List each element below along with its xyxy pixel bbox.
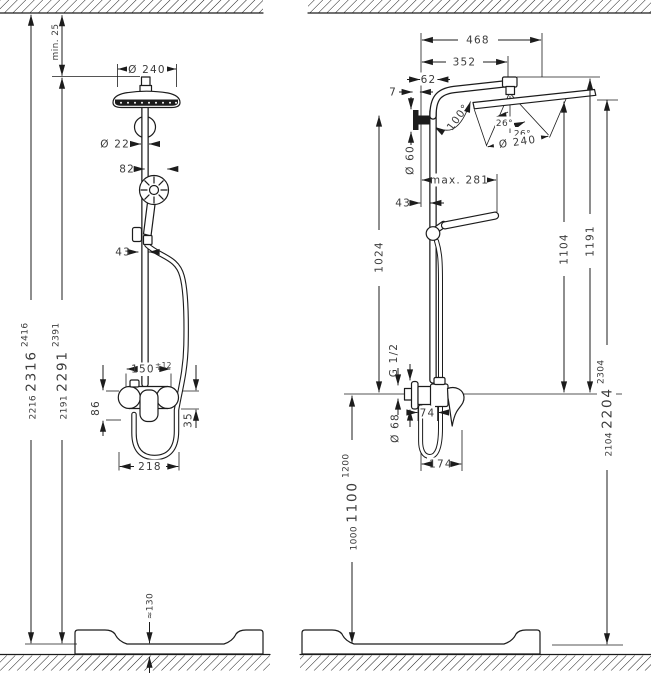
mixer-lever-front — [140, 390, 158, 422]
mixer-cartridge-cap — [434, 378, 445, 385]
side-view: 468 352 62 7 100° 26° 26° — [302, 33, 623, 654]
front-view: 2216 2316 2416 2191 2291 2391 min. 25 — [21, 15, 264, 673]
shower-tray-front — [75, 630, 263, 654]
dim-connection-height-high: 1200 — [342, 453, 352, 478]
front-dimensions: 2216 2316 2416 2191 2291 2391 min. 25 — [21, 15, 197, 673]
dim-head-dia-side: Ø 240 — [498, 134, 537, 151]
technical-drawing-page: 2216 2316 2416 2191 2291 2391 min. 25 — [0, 0, 651, 674]
dim-unit-height-mid: 2291 — [55, 350, 71, 392]
dim-connection-height-mid: 1100 — [345, 481, 361, 523]
dim-head-height-low: 2104 — [605, 432, 615, 457]
dim-bracket-height-label: 1024 — [374, 241, 386, 273]
dim-min-ceiling-label: min. 25 — [51, 24, 61, 61]
dim-connection-tolerance-label: ±12 — [155, 361, 172, 370]
wall-bracket-flange — [413, 110, 419, 130]
head-pivot-joint — [503, 77, 518, 87]
mixer-body-side — [418, 387, 431, 405]
dim-bracket-dia-label: Ø 60 — [405, 145, 417, 175]
dim-total-height-mid: 2316 — [24, 350, 40, 392]
front-shower-unit — [113, 77, 186, 458]
overhead-shower-side — [473, 90, 596, 109]
wall-bracket-arm — [419, 116, 431, 125]
dim-head-height-high: 2304 — [597, 359, 607, 384]
dim-thread-label: G 1/2 — [388, 343, 400, 377]
dim-tilt-left-label: 26° — [496, 119, 513, 129]
dim-wall-gap-label: 7 — [389, 87, 397, 99]
dim-overall-depth-label: 174 — [429, 459, 453, 471]
dim-unit-height-high: 2391 — [52, 322, 62, 347]
mixer-escutcheon-side — [412, 382, 419, 410]
dim-pipe-dia-label: Ø 22 — [100, 139, 130, 151]
slider-holder — [133, 228, 142, 242]
mixer-escutcheon-left — [118, 387, 140, 409]
dim-escutcheon-dia-label: Ø 68 — [390, 413, 402, 443]
slider-clamp — [426, 227, 440, 241]
dim-unit-height-low: 2191 — [60, 395, 70, 420]
side-dimensions: 468 352 62 7 100° 26° 26° — [342, 34, 617, 645]
dim-body-depth-label: 74 — [420, 408, 436, 420]
shower-installation-drawing: 2216 2316 2416 2191 2291 2391 min. 25 — [0, 0, 651, 674]
dim-overall-height-label: 1191 — [585, 225, 597, 257]
handshower-side — [441, 212, 499, 230]
dim-connection-width-label: 150 — [131, 364, 155, 376]
dim-wall-pipe-outer-label: 62 — [421, 74, 437, 86]
side-extension-lines — [344, 33, 623, 645]
mixer-lever-side — [448, 388, 465, 426]
dim-arm-angle-label: 100° — [445, 102, 472, 133]
dim-holder-offset-label: 43 — [115, 247, 131, 259]
dim-head-dia-front: Ø 240 — [128, 64, 166, 76]
handshower-nut — [144, 236, 153, 245]
dim-total-height-low: 2216 — [29, 395, 39, 420]
ceiling-hatch — [0, 0, 651, 13]
dim-arm-reach-label: 352 — [453, 57, 477, 69]
dim-total-height-high: 2416 — [21, 322, 31, 347]
dim-connection-height-low: 1000 — [350, 526, 360, 551]
floor-hatch — [0, 655, 651, 671]
dim-head-face-height-label: 1104 — [559, 233, 571, 265]
dim-wall-pipe-label: 43 — [395, 198, 411, 210]
front-extension-lines — [25, 64, 199, 644]
dim-lever-drop-label: 35 — [183, 412, 195, 428]
dim-mixer-height-label: 86 — [90, 400, 102, 416]
head-connector — [142, 77, 151, 86]
dim-handshower-width-label: 82 — [119, 164, 135, 176]
dim-tray-height-label: ≈130 — [146, 593, 156, 619]
dim-max-reach-label: max. 281 — [430, 175, 489, 187]
dim-mixer-width-label: 218 — [138, 461, 162, 473]
mixer-knob — [130, 380, 139, 387]
mixer-escutcheon-right — [157, 387, 179, 409]
shower-tray-side — [302, 630, 540, 654]
overhead-spray-band — [115, 100, 178, 106]
dim-overall-reach-label: 468 — [466, 35, 490, 47]
dim-head-height-mid: 2204 — [600, 387, 616, 429]
